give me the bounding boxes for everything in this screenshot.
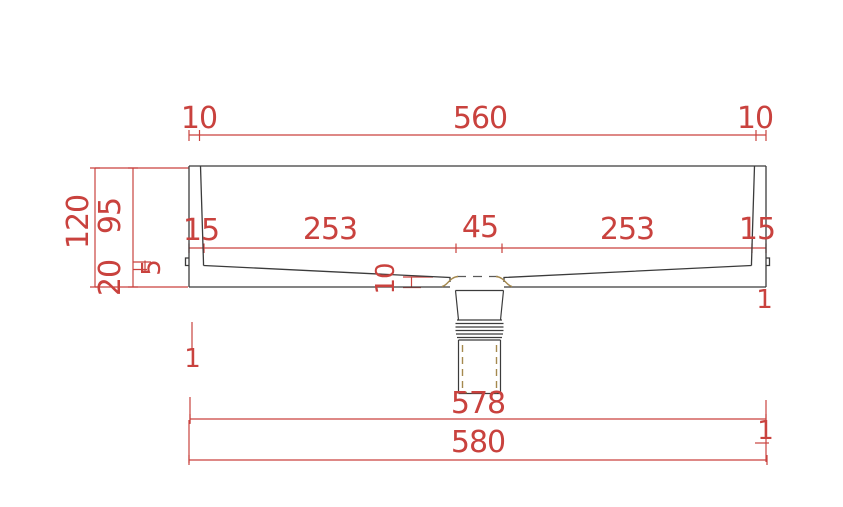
dim-text-left-wall: 15 xyxy=(181,216,221,246)
dim-text-right-wall: 15 xyxy=(737,215,777,245)
dim-text-overall-length: 580 xyxy=(438,428,518,458)
dim-text-drain-width: 45 xyxy=(460,213,500,243)
drawing-linework xyxy=(0,0,843,507)
dim-text-basin-depth: 95 xyxy=(96,191,126,241)
dim-text-top-right-offset: 10 xyxy=(735,104,775,134)
dim-text-left-floor-run: 253 xyxy=(290,215,370,245)
dim-text-overall-height: 120 xyxy=(64,187,94,257)
dim-text-top-left-offset: 10 xyxy=(179,104,219,134)
drain-thread-ribs xyxy=(456,320,504,338)
dim-text-base-thickness: 20 xyxy=(96,253,126,303)
edge-mark-right-mid: 1 xyxy=(755,418,775,444)
bowl-floor-right xyxy=(504,266,752,283)
dim-text-inner-width: 560 xyxy=(440,104,520,134)
dimension-lines xyxy=(90,130,769,465)
bowl-floor-left xyxy=(204,266,451,283)
dim-text-right-floor-run: 253 xyxy=(587,215,667,245)
dim-text-inner-length: 578 xyxy=(438,389,518,419)
dim-ext-bottom-left-stack xyxy=(189,397,190,463)
technical-drawing-basin-section: 10 560 10 120 95 20 5 15 253 45 253 15 1… xyxy=(0,0,843,507)
dim-text-step: 5 xyxy=(139,255,165,281)
edge-mark-right-lower: 1 xyxy=(754,287,774,313)
edge-mark-left-lower: 1 xyxy=(182,346,202,372)
dim-floor-10 xyxy=(403,277,433,288)
drain-taper-body xyxy=(456,291,504,321)
dim-text-floor-thickness: 10 xyxy=(373,257,399,301)
